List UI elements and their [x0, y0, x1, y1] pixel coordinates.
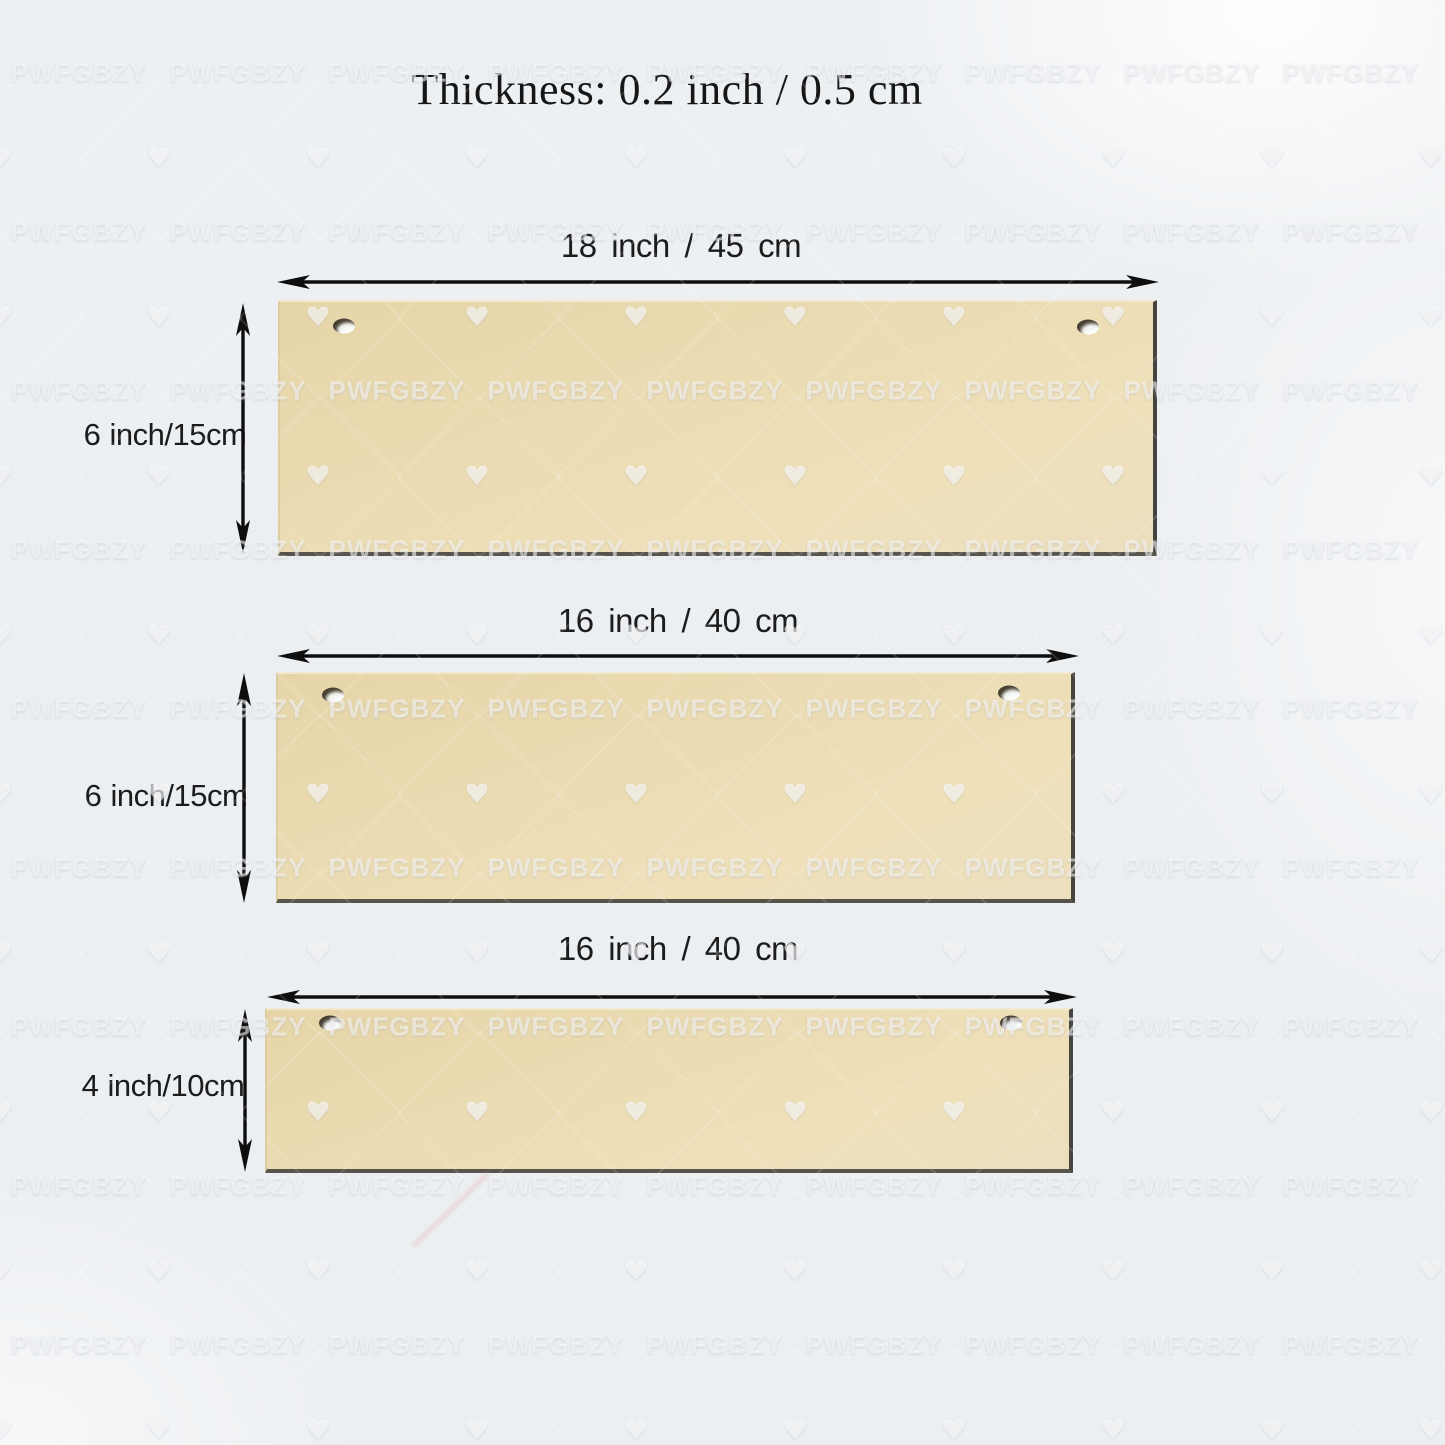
watermark-lattice-diamond: [0, 872, 84, 1036]
watermark-text: PWFGBZY: [1124, 1171, 1261, 1202]
gem-watermark-icon: [1101, 782, 1125, 804]
hanging-hole: [1077, 320, 1099, 335]
gem-watermark-icon: [1101, 1418, 1125, 1440]
gem-watermark-icon: [306, 941, 330, 963]
gem-watermark-icon: [624, 146, 648, 168]
gem-watermark-icon: [147, 146, 171, 168]
watermark-lattice-diamond: [556, 1349, 720, 1445]
watermark-lattice-diamond: [874, 1190, 1038, 1354]
watermark-text: PWFGBZY: [11, 217, 148, 248]
board1-width-label: 18 inch / 45 cm: [561, 227, 801, 265]
gem-watermark-icon: [942, 1418, 966, 1440]
gem-watermark-icon: [0, 1100, 12, 1122]
gem-watermark-icon: [147, 623, 171, 645]
watermark-lattice-diamond: [1192, 872, 1356, 1036]
gem-watermark-icon: [1419, 146, 1443, 168]
watermark-text: PWFGBZY: [11, 535, 148, 566]
watermark-text: PWFGBZY: [647, 1171, 784, 1202]
gem-watermark-icon: [0, 1418, 12, 1440]
watermark-text: PWFGBZY: [965, 217, 1102, 248]
watermark-lattice-diamond: [0, 1190, 84, 1354]
watermark-lattice-diamond: [79, 1349, 243, 1445]
gem-watermark-icon: [0, 623, 12, 645]
watermark-lattice-diamond: [0, 395, 84, 559]
board3-width-label: 16 inch / 40 cm: [558, 930, 798, 968]
gem-watermark-icon: [1419, 305, 1443, 327]
gem-watermark-icon: [0, 941, 12, 963]
watermark-text: PWFGBZY: [170, 1171, 307, 1202]
gem-watermark-icon: [306, 623, 330, 645]
watermark-lattice-diamond: [556, 1190, 720, 1354]
board3-width-arrow: [266, 988, 1078, 1006]
watermark-text: PWFGBZY: [806, 1171, 943, 1202]
watermark-lattice-diamond: [1033, 77, 1197, 241]
gem-watermark-icon: [465, 1259, 489, 1281]
gem-watermark-icon: [1101, 1100, 1125, 1122]
gem-watermark-icon: [0, 146, 12, 168]
gem-watermark-icon: [1101, 623, 1125, 645]
gem-watermark-icon: [1260, 782, 1284, 804]
photo-artifact-streak: [411, 1172, 489, 1248]
watermark-text: PWFGBZY: [1283, 217, 1420, 248]
watermark-text: PWFGBZY: [1124, 58, 1261, 89]
board1-width-arrow: [276, 273, 1160, 291]
gem-watermark-icon: [624, 1259, 648, 1281]
gem-watermark-icon: [1101, 1259, 1125, 1281]
watermark-lattice-diamond: [874, 1349, 1038, 1445]
watermark-lattice-diamond: [238, 1349, 402, 1445]
gem-watermark-icon: [1419, 1100, 1443, 1122]
watermark-text: PWFGBZY: [1283, 853, 1420, 884]
wood-board-16x6: [276, 672, 1075, 903]
watermark-lattice-diamond: [1033, 1349, 1197, 1445]
watermark-lattice-diamond: [238, 1190, 402, 1354]
gem-watermark-icon: [465, 146, 489, 168]
watermark-lattice-diamond: [1351, 713, 1445, 877]
watermark-lattice-diamond: [1192, 395, 1356, 559]
watermark-text: PWFGBZY: [170, 217, 307, 248]
watermark-text: PWFGBZY: [1283, 58, 1420, 89]
watermark-text: PWFGBZY: [965, 1330, 1102, 1361]
board3-height-arrow: [236, 1008, 254, 1173]
gem-watermark-icon: [1101, 146, 1125, 168]
gem-watermark-icon: [1260, 941, 1284, 963]
watermark-lattice-diamond: [0, 77, 84, 241]
product-dimension-diagram: Thickness: 0.2 inch / 0.5 cm 18 inch / 4…: [0, 0, 1445, 1445]
thickness-title: Thickness: 0.2 inch / 0.5 cm: [411, 64, 922, 115]
gem-watermark-icon: [1419, 623, 1443, 645]
gem-watermark-icon: [1260, 1100, 1284, 1122]
watermark-lattice-diamond: [0, 713, 84, 877]
watermark-lattice-diamond: [79, 1031, 243, 1195]
watermark-lattice-diamond: [238, 77, 402, 241]
gem-watermark-icon: [1260, 1418, 1284, 1440]
watermark-lattice-diamond: [0, 236, 84, 400]
watermark-lattice-diamond: [0, 1349, 84, 1445]
gem-watermark-icon: [783, 146, 807, 168]
watermark-text: PWFGBZY: [1283, 694, 1420, 725]
board2-width-arrow: [276, 647, 1080, 665]
board1-height-label: 6 inch/15cm: [84, 417, 247, 453]
gem-watermark-icon: [942, 146, 966, 168]
watermark-lattice-diamond: [79, 236, 243, 400]
watermark-text: PWFGBZY: [488, 1171, 625, 1202]
wood-board-18x6: [278, 300, 1157, 556]
watermark-text: PWFGBZY: [1283, 376, 1420, 407]
watermark-text: PWFGBZY: [488, 1330, 625, 1361]
watermark-lattice-diamond: [1351, 236, 1445, 400]
gem-watermark-icon: [1260, 623, 1284, 645]
gem-watermark-icon: [942, 623, 966, 645]
gem-watermark-icon: [1419, 1418, 1443, 1440]
board3-height-label: 4 inch/10cm: [82, 1068, 245, 1104]
watermark-text: PWFGBZY: [806, 1330, 943, 1361]
watermark-lattice-diamond: [397, 1349, 561, 1445]
watermark-lattice-diamond: [715, 1349, 879, 1445]
watermark-text: PWFGBZY: [1124, 694, 1261, 725]
gem-watermark-icon: [306, 1418, 330, 1440]
watermark-text: PWFGBZY: [1283, 535, 1420, 566]
gem-watermark-icon: [0, 305, 12, 327]
board2-height-arrow: [235, 672, 253, 904]
watermark-lattice-diamond: [1192, 1031, 1356, 1195]
watermark-lattice-diamond: [79, 1190, 243, 1354]
gem-watermark-icon: [465, 1418, 489, 1440]
gem-watermark-icon: [1260, 305, 1284, 327]
watermark-text: PWFGBZY: [329, 1330, 466, 1361]
watermark-lattice-diamond: [1351, 554, 1445, 718]
gem-watermark-icon: [1419, 782, 1443, 804]
gem-watermark-icon: [1419, 1259, 1443, 1281]
watermark-lattice-diamond: [0, 554, 84, 718]
watermark-text: PWFGBZY: [1124, 1330, 1261, 1361]
gem-watermark-icon: [942, 941, 966, 963]
board2-height-label: 6 inch/15cm: [85, 778, 248, 814]
gem-watermark-icon: [306, 1259, 330, 1281]
gem-watermark-icon: [1101, 941, 1125, 963]
watermark-text: PWFGBZY: [11, 376, 148, 407]
board1-height-arrow: [234, 302, 252, 554]
watermark-lattice-diamond: [1192, 713, 1356, 877]
gem-watermark-icon: [624, 1418, 648, 1440]
hanging-hole: [998, 686, 1020, 701]
watermark-text: PWFGBZY: [965, 1171, 1102, 1202]
watermark-lattice-diamond: [1192, 236, 1356, 400]
watermark-lattice-diamond: [1351, 77, 1445, 241]
gem-watermark-icon: [465, 623, 489, 645]
watermark-lattice-diamond: [0, 1031, 84, 1195]
gem-watermark-icon: [783, 1259, 807, 1281]
watermark-text: PWFGBZY: [11, 58, 148, 89]
watermark-lattice-diamond: [1192, 77, 1356, 241]
hanging-hole: [322, 688, 344, 703]
watermark-text: PWFGBZY: [1283, 1171, 1420, 1202]
watermark-lattice-diamond: [1351, 1349, 1445, 1445]
gem-watermark-icon: [1419, 941, 1443, 963]
gem-watermark-icon: [465, 941, 489, 963]
gem-watermark-icon: [1419, 464, 1443, 486]
watermark-lattice-diamond: [1192, 554, 1356, 718]
gem-watermark-icon: [147, 464, 171, 486]
gem-watermark-icon: [1260, 464, 1284, 486]
watermark-lattice-diamond: [79, 77, 243, 241]
watermark-text: PWFGBZY: [329, 217, 466, 248]
watermark-text: PWFGBZY: [1283, 1012, 1420, 1043]
hanging-hole: [319, 1016, 341, 1031]
watermark-text: PWFGBZY: [11, 1171, 148, 1202]
watermark-text: PWFGBZY: [806, 217, 943, 248]
gem-watermark-icon: [783, 1418, 807, 1440]
watermark-lattice-diamond: [1192, 1349, 1356, 1445]
wood-board-16x4: [265, 1008, 1073, 1173]
watermark-text: PWFGBZY: [965, 58, 1102, 89]
gem-watermark-icon: [147, 1418, 171, 1440]
watermark-lattice-diamond: [1351, 395, 1445, 559]
watermark-text: PWFGBZY: [1283, 1330, 1420, 1361]
gem-watermark-icon: [1260, 1259, 1284, 1281]
watermark-text: PWFGBZY: [11, 1012, 148, 1043]
watermark-lattice-diamond: [1351, 1190, 1445, 1354]
gem-watermark-icon: [0, 464, 12, 486]
gem-watermark-icon: [1260, 146, 1284, 168]
hanging-hole: [333, 319, 355, 334]
watermark-text: PWFGBZY: [170, 58, 307, 89]
watermark-lattice-diamond: [79, 872, 243, 1036]
watermark-text: PWFGBZY: [11, 694, 148, 725]
watermark-lattice-diamond: [715, 1190, 879, 1354]
hanging-hole: [1000, 1016, 1022, 1031]
watermark-text: PWFGBZY: [329, 1171, 466, 1202]
watermark-text: PWFGBZY: [1124, 1012, 1261, 1043]
watermark-lattice-diamond: [79, 554, 243, 718]
watermark-lattice-diamond: [397, 1190, 561, 1354]
watermark-text: PWFGBZY: [11, 1330, 148, 1361]
watermark-lattice-diamond: [1351, 1031, 1445, 1195]
gem-watermark-icon: [147, 1259, 171, 1281]
watermark-text: PWFGBZY: [11, 853, 148, 884]
watermark-lattice-diamond: [1033, 1190, 1197, 1354]
watermark-lattice-diamond: [1351, 872, 1445, 1036]
watermark-text: PWFGBZY: [170, 1330, 307, 1361]
watermark-lattice-diamond: [1192, 1190, 1356, 1354]
watermark-text: PWFGBZY: [647, 1330, 784, 1361]
gem-watermark-icon: [147, 941, 171, 963]
gem-watermark-icon: [306, 146, 330, 168]
board2-width-label: 16 inch / 40 cm: [558, 602, 798, 640]
watermark-text: PWFGBZY: [1124, 853, 1261, 884]
gem-watermark-icon: [147, 305, 171, 327]
gem-watermark-icon: [0, 782, 12, 804]
watermark-text: PWFGBZY: [1124, 217, 1261, 248]
gem-watermark-icon: [0, 1259, 12, 1281]
gem-watermark-icon: [942, 1259, 966, 1281]
